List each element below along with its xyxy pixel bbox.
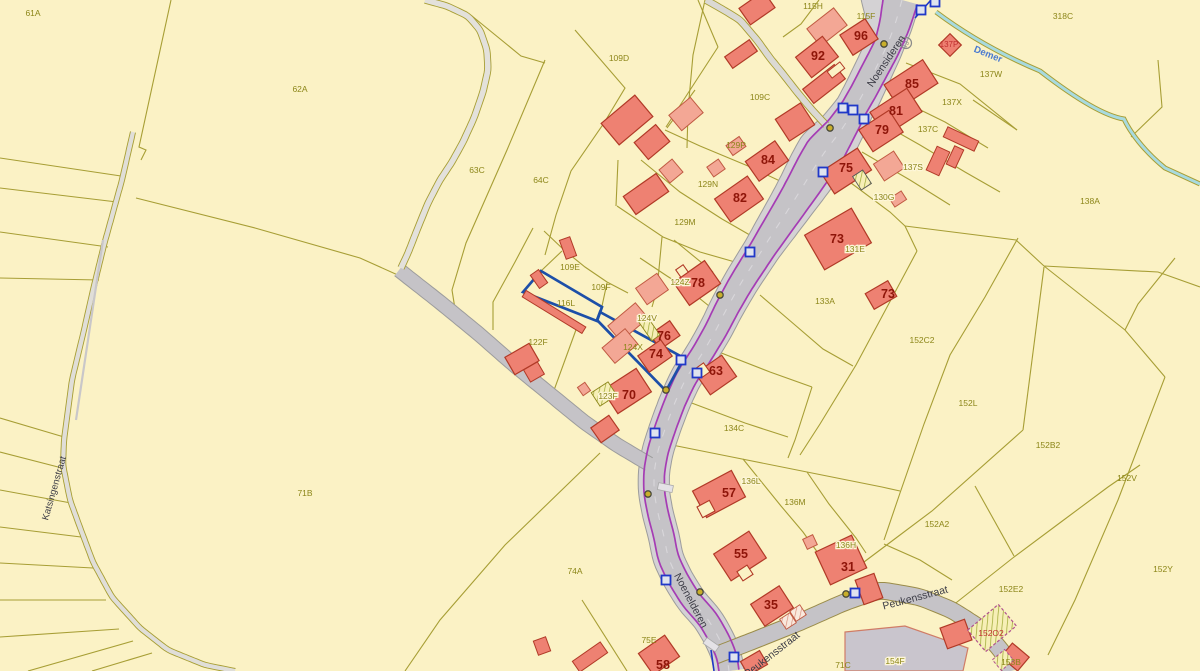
svg-text:124V: 124V (637, 313, 657, 323)
svg-text:92: 92 (811, 49, 825, 63)
svg-text:137P: 137P (940, 40, 959, 49)
svg-text:82: 82 (733, 191, 747, 205)
svg-text:109C: 109C (750, 92, 770, 102)
svg-text:79: 79 (875, 123, 889, 137)
svg-text:152V: 152V (1117, 473, 1137, 483)
svg-text:152O2: 152O2 (978, 628, 1004, 638)
svg-text:137S: 137S (903, 162, 923, 172)
svg-text:109D: 109D (609, 53, 629, 63)
svg-text:123F: 123F (598, 391, 617, 401)
svg-text:58: 58 (656, 658, 670, 671)
svg-text:154F: 154F (885, 656, 904, 666)
svg-text:137W: 137W (980, 69, 1002, 79)
svg-text:131E: 131E (845, 244, 865, 254)
svg-text:71C: 71C (835, 660, 851, 670)
svg-text:152Y: 152Y (1153, 564, 1173, 574)
svg-text:318C: 318C (1053, 11, 1073, 21)
svg-text:96: 96 (854, 29, 868, 43)
svg-text:73: 73 (881, 287, 895, 301)
svg-text:70: 70 (622, 388, 636, 402)
svg-text:116L: 116L (557, 298, 576, 308)
svg-text:55: 55 (734, 547, 748, 561)
svg-text:136M: 136M (784, 497, 805, 507)
svg-text:124Z: 124Z (670, 277, 689, 287)
svg-text:75: 75 (839, 161, 853, 175)
svg-text:133A: 133A (815, 296, 835, 306)
svg-text:136H: 136H (836, 540, 856, 550)
svg-text:81: 81 (889, 104, 903, 118)
svg-text:115F: 115F (857, 11, 876, 21)
svg-text:124X: 124X (623, 342, 643, 352)
svg-text:74: 74 (649, 347, 663, 361)
svg-text:129P: 129P (726, 140, 746, 150)
svg-text:31: 31 (841, 560, 855, 574)
svg-text:74A: 74A (567, 566, 582, 576)
svg-text:63C: 63C (469, 165, 485, 175)
svg-text:62A: 62A (292, 84, 307, 94)
svg-text:78: 78 (691, 276, 705, 290)
svg-text:136L: 136L (742, 476, 761, 486)
svg-text:129M: 129M (674, 217, 695, 227)
svg-text:35: 35 (764, 598, 778, 612)
svg-text:109F: 109F (591, 282, 610, 292)
svg-text:153B: 153B (1001, 657, 1021, 667)
svg-text:75E: 75E (641, 635, 656, 645)
svg-text:137X: 137X (942, 97, 962, 107)
svg-text:130G: 130G (874, 192, 895, 202)
svg-text:134C: 134C (724, 423, 744, 433)
svg-text:152C2: 152C2 (909, 335, 934, 345)
svg-text:137C: 137C (918, 124, 938, 134)
svg-text:84: 84 (761, 153, 775, 167)
svg-text:71B: 71B (297, 488, 312, 498)
svg-text:152B2: 152B2 (1036, 440, 1061, 450)
svg-text:122F: 122F (528, 337, 547, 347)
svg-text:138A: 138A (1080, 196, 1100, 206)
svg-text:109E: 109E (560, 262, 580, 272)
svg-text:152L: 152L (959, 398, 978, 408)
svg-text:76: 76 (657, 329, 671, 343)
svg-text:115H: 115H (803, 1, 823, 11)
svg-text:129N: 129N (698, 179, 718, 189)
svg-text:73: 73 (830, 232, 844, 246)
svg-text:63: 63 (709, 364, 723, 378)
svg-text:64C: 64C (533, 175, 549, 185)
svg-text:57: 57 (722, 486, 736, 500)
svg-text:152E2: 152E2 (999, 584, 1024, 594)
svg-text:61A: 61A (25, 8, 40, 18)
svg-text:152A2: 152A2 (925, 519, 950, 529)
svg-text:85: 85 (905, 77, 919, 91)
